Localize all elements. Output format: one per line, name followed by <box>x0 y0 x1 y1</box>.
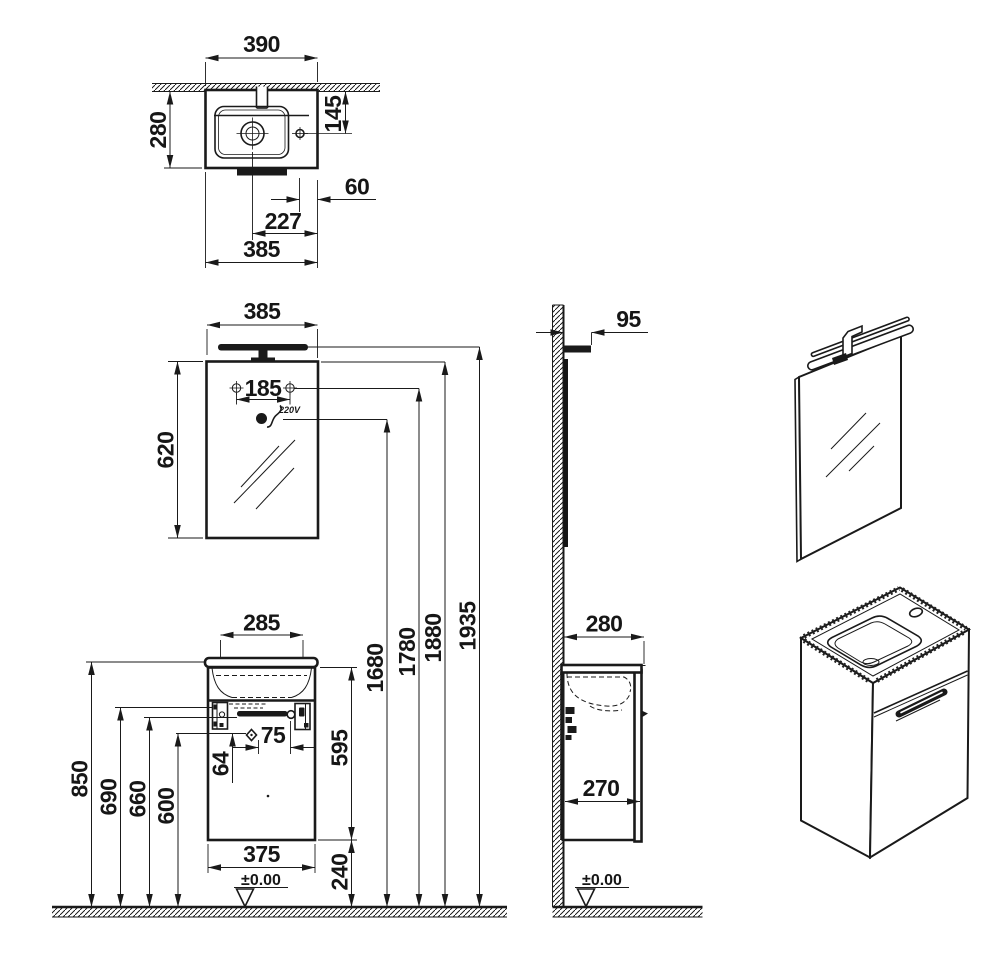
dim-top-width-overall: 390 <box>206 31 318 86</box>
dim-label-850: 850 <box>67 761 93 798</box>
dim-label-1935: 1935 <box>455 601 481 651</box>
dim-label-285: 285 <box>243 610 281 636</box>
dim-label-595: 595 <box>327 729 353 767</box>
dim-depth-overall: 280 <box>564 611 644 665</box>
dim-label-385-top: 385 <box>243 236 281 262</box>
siphon-clamps <box>566 707 577 740</box>
datum-label-front: ±0.00 <box>241 872 281 889</box>
render-vanity-3d <box>801 588 969 858</box>
dim-top-depth: 280 <box>145 92 202 169</box>
dim-label-1680: 1680 <box>362 643 388 692</box>
dim-mirror-height: 620 <box>153 362 204 539</box>
mounting-bracket <box>237 168 287 176</box>
datum-symbol-side: ±0.00 <box>575 872 629 907</box>
worktop-profile <box>562 665 642 673</box>
basin-plan-body <box>206 87 318 176</box>
drawing-svg: 390 <box>0 0 1000 956</box>
dim-cabinet-depth: 270 <box>565 775 640 802</box>
dim-label-1880: 1880 <box>420 613 446 662</box>
dim-label-600: 600 <box>153 788 179 825</box>
dim-label-240: 240 <box>327 854 353 891</box>
light-fixture-profile <box>564 346 591 353</box>
dim-label-620: 620 <box>153 432 179 469</box>
dim-floor-clearance: 240 <box>327 840 353 907</box>
dim-label-270: 270 <box>583 775 620 801</box>
dim-label-185: 185 <box>245 375 283 401</box>
technical-drawing-canvas: 390 <box>0 0 1000 956</box>
elevation-height-dims: 1680 1780 1880 1935 <box>362 347 481 907</box>
hinge-right <box>295 704 310 730</box>
dim-cabinet-height: 595 <box>318 668 357 841</box>
mirror-light-fixture <box>218 344 308 362</box>
render-mirror-3d <box>795 317 914 562</box>
dim-label-660: 660 <box>125 781 151 818</box>
outlet-voltage-label: 220V <box>278 405 301 415</box>
dim-label-690: 690 <box>96 779 122 816</box>
datum-label-side: ±0.00 <box>582 872 622 889</box>
dim-label-60: 60 <box>345 174 370 200</box>
dim-basin-width: 285 <box>221 610 304 659</box>
datum-icon-side <box>578 889 595 907</box>
dim-cabinet-width: 375 <box>208 841 315 873</box>
dim-label-227: 227 <box>265 208 302 234</box>
dim-label-385-mirror: 385 <box>244 298 282 324</box>
dim-label-75: 75 <box>261 722 286 748</box>
door-profile <box>635 670 642 842</box>
hinge-left <box>213 703 228 730</box>
dim-label-280-side: 280 <box>586 611 623 637</box>
dim-label-95: 95 <box>616 306 641 332</box>
dim-label-375: 375 <box>243 841 281 867</box>
washbasin-top <box>205 658 318 667</box>
datum-icon <box>237 889 254 907</box>
dim-label-145: 145 <box>320 95 346 133</box>
top-view-washbasin-plan: 390 <box>145 31 380 268</box>
ground-hatch-side <box>553 907 703 917</box>
ground-hatch-front <box>52 907 507 917</box>
side-view: 95 280 <box>536 305 703 917</box>
dim-label-390: 390 <box>243 31 280 57</box>
cabinet-side-profile <box>562 665 649 842</box>
door-dot <box>267 795 270 798</box>
dim-label-280: 280 <box>145 112 171 149</box>
handle-profile <box>642 711 649 718</box>
dim-label-1780: 1780 <box>394 627 420 676</box>
dim-label-64: 64 <box>208 751 234 776</box>
datum-symbol-front: ±0.00 <box>234 872 288 907</box>
mirror-front-view: 385 620 185 <box>153 298 480 538</box>
mirror-profile <box>564 359 569 547</box>
